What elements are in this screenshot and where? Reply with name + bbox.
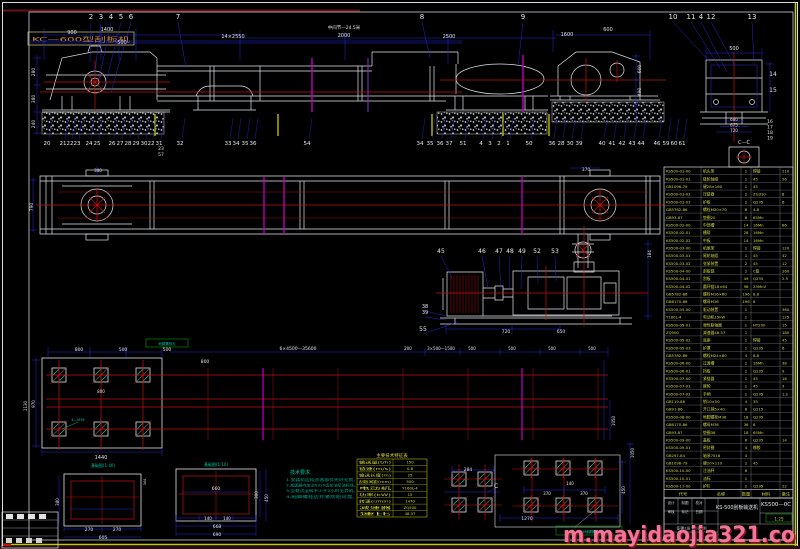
bom-cell: 护栏 xyxy=(703,484,711,489)
dim-label: 2500 xyxy=(443,34,456,40)
bom-cell: 16Mn xyxy=(753,238,764,243)
dim-label: 270 xyxy=(113,527,122,533)
bom-cell: 180 xyxy=(782,330,790,335)
callout-number: 27 xyxy=(117,141,124,147)
bom-cell: KS500-10-00 xyxy=(666,468,691,473)
param-value: 500 xyxy=(406,479,414,484)
dim-label: 地脚螺栓孔 xyxy=(158,341,176,346)
dim-label: 600 xyxy=(730,117,738,122)
bom-cell: 1 xyxy=(745,184,748,189)
callout-number: 55 xyxy=(419,326,427,333)
bom-cell: 45 xyxy=(753,176,758,181)
leader-line xyxy=(676,118,679,139)
cad-sheet: KC—600型刮板机 xyxy=(0,0,800,549)
bom-cell: 紧链器 xyxy=(703,376,715,381)
bom-cell: 65Mn xyxy=(753,430,764,435)
bom-cell: 螺母M16 xyxy=(703,299,719,304)
bom-header: 材料 xyxy=(762,491,771,498)
dim-label: 344 xyxy=(143,478,147,485)
callout-number: 32 xyxy=(177,141,184,147)
dim-label: 19 xyxy=(767,136,773,142)
bom-cell: 4 xyxy=(745,445,748,450)
bom-cell: 8.8 xyxy=(753,292,760,297)
dim-label: 370 xyxy=(582,167,591,173)
bom-cell: GB5782-86 xyxy=(666,353,688,358)
param-label: 速比 xyxy=(359,511,393,516)
technical-notes: 技术要求1.安装前应检查各部件完好无损。2.减速器内加注N320齿轮油至油标线。… xyxy=(286,469,358,499)
bom-cell: 螺栓M16×60 xyxy=(703,292,727,297)
param-label: 刮板间距(mm) xyxy=(359,479,392,484)
callout-number: 29 xyxy=(133,141,140,147)
callout-number: 43 xyxy=(629,141,636,147)
leader-line xyxy=(309,118,312,139)
bom-cell: 42 xyxy=(782,253,787,258)
dim-label: 1400 xyxy=(101,27,114,33)
bom-cell: 8 xyxy=(753,299,756,304)
dim-label: 800 xyxy=(97,389,105,394)
dim-label: 500 xyxy=(163,347,172,353)
callout-number: 35 xyxy=(242,141,249,147)
bom-cell: 65Mn xyxy=(753,215,764,220)
callout-number: 41 xyxy=(609,141,616,147)
param-label: 转速(r/min) xyxy=(359,498,392,503)
dim-label: 605 xyxy=(99,535,108,541)
bom-cell: 1 xyxy=(745,315,748,320)
callout-number: 35 xyxy=(427,141,434,147)
dim-label: 720 xyxy=(730,128,738,133)
dim-label: C—C xyxy=(738,140,750,146)
drawing-number: KS500—0C xyxy=(761,502,792,508)
bom-cell: 4.8 xyxy=(753,207,760,212)
drive-dim-lines xyxy=(446,240,652,334)
bom-cell: 6 xyxy=(745,437,748,442)
bom-header: 名称 xyxy=(717,491,725,498)
bom-cell: KS500-05-02 xyxy=(666,338,691,343)
bom-cell: KS500-03-00 xyxy=(666,245,691,250)
bom-cell: 螺母M36 xyxy=(703,422,719,427)
callout-number: 2 xyxy=(497,141,501,147)
bom-cell: Q235 xyxy=(753,484,764,489)
bom-cell: 8 xyxy=(782,192,785,197)
callout-number: 59 xyxy=(663,141,670,147)
bom-cell: 1 xyxy=(745,384,748,389)
bom-cell: KS500-03-01 xyxy=(666,253,691,258)
bom-cell: 18 xyxy=(744,430,749,435)
bom-cell: 196 xyxy=(742,292,750,297)
bom-cell: 电动机15kW xyxy=(703,315,725,320)
callout-number: 37 xyxy=(446,141,453,147)
bom-cell: 驱动装置 xyxy=(703,307,718,312)
bom-cell: 35 xyxy=(753,399,758,404)
bom-cell: 过渡槽 xyxy=(703,361,715,366)
dim-label: 17 xyxy=(767,125,773,131)
bom-cell: KS500-02-00 xyxy=(666,222,691,227)
bom-cell: 6 xyxy=(745,468,748,473)
bom-cell: 6 xyxy=(782,199,785,204)
bom-cell: 16Mn xyxy=(753,230,764,235)
leader-line xyxy=(178,22,186,68)
bom-cell: KS500-07-00 xyxy=(666,376,691,381)
bom-cell: 12 xyxy=(782,261,787,266)
bom-cell: 4 xyxy=(745,453,748,458)
bom-cell: KS500-01-03 xyxy=(666,199,691,204)
bom-cell: 14 xyxy=(744,222,749,227)
bom-cell: 棘轮 xyxy=(703,384,711,389)
dim-label: 500 xyxy=(117,40,127,46)
param-value: 150 xyxy=(406,460,414,465)
bom-cell: 中部槽 xyxy=(703,222,715,227)
bom-cell: 8 xyxy=(745,215,748,220)
callout-number: 28 xyxy=(125,141,132,147)
dim-label: 300 xyxy=(94,168,102,173)
dim-label: 380 xyxy=(31,95,37,104)
anchor-detail-6bolt xyxy=(495,442,634,535)
bom-cell: 盖板 xyxy=(703,437,711,442)
leader-line xyxy=(691,22,720,68)
bom-cell: 油标 xyxy=(703,476,711,481)
scale-value: 1:25 xyxy=(775,517,784,522)
bom-cell: 1 xyxy=(745,391,748,396)
dim-label: 16 xyxy=(767,119,773,125)
foundation-hatch-left xyxy=(42,112,164,134)
dim-label: 14 xyxy=(769,71,777,78)
bom-cell: 中板 xyxy=(703,238,711,243)
cad-drawing-canvas: KC—600型刮板机 xyxy=(0,0,800,549)
bom-cell: 焊接 xyxy=(753,245,761,250)
bom-cell: KS500-04-01 xyxy=(666,276,691,281)
dim-label: 800 xyxy=(201,359,210,365)
callout-number: 34 xyxy=(233,141,240,147)
bom-cell: 张紧装置 xyxy=(703,261,718,266)
bom-cell: 减速器48.57 xyxy=(703,330,726,335)
leader-line xyxy=(247,118,250,139)
callout-number: 60 xyxy=(671,141,678,147)
bom-table: KS500-01-00机头架1焊接210KS500-01-01链轮轴组14556… xyxy=(664,167,793,498)
callout-number: 26 xyxy=(109,141,116,147)
dim-label: 450 xyxy=(264,494,269,502)
dim-label: 240 xyxy=(31,120,37,129)
dim-label: 600 xyxy=(637,65,643,74)
bom-cell: 2 xyxy=(745,261,748,266)
callout-number: 6 xyxy=(129,13,134,21)
bom-cell: 38 xyxy=(782,361,787,366)
bom-cell: KS500-09-00 xyxy=(666,437,691,442)
bom-cell: 圆环链18×64 xyxy=(703,284,728,289)
bom-cell: 焊接 xyxy=(753,338,761,343)
bom-cell: KS500-01-02 xyxy=(666,192,691,197)
anchor-detail-4bolt xyxy=(444,464,502,520)
param-label: 输送量(t/h) xyxy=(359,460,392,465)
callout-number: 3 xyxy=(488,141,492,147)
bom-cell: GB5782-86 xyxy=(666,292,688,297)
dim-label: 1440 xyxy=(95,455,108,461)
notes-line: 2.减速器内加注N320齿轮油至油标线。 xyxy=(286,483,358,488)
bom-cell: 1 xyxy=(745,330,748,335)
foundation-grid-red xyxy=(46,360,608,450)
notes-line: 3.空载试运转不少于2小时无异响。 xyxy=(286,488,358,493)
dim-label: 14×2550 xyxy=(221,34,244,40)
bom-cell: ZQ500 xyxy=(666,330,679,335)
bom-cell: 1 xyxy=(745,338,748,343)
bom-cell: 2.5 xyxy=(782,276,789,281)
bom-cell: 45 xyxy=(753,253,758,258)
bom-cell: KS500-05-03 xyxy=(666,345,691,350)
dim-label: 140 xyxy=(566,481,574,486)
param-label: 电动机 xyxy=(359,485,392,490)
param-label: 链速(m/s) xyxy=(359,466,392,471)
title-cell: 标记 xyxy=(682,509,690,514)
product-name: KS-500刮板输送机 xyxy=(716,504,758,511)
bom-cell: 底座 xyxy=(703,338,711,343)
bom-cell: 机尾架 xyxy=(703,245,715,250)
bom-cell: 1 xyxy=(745,176,748,181)
bom-cell: GB93-87 xyxy=(666,215,683,220)
callout-number: 3 xyxy=(99,13,103,21)
bom-cell: 地脚螺栓M36 xyxy=(703,414,727,419)
callout-number: 12 xyxy=(707,13,716,21)
leader-line xyxy=(499,256,501,289)
bom-cell: 尾轮轴组 xyxy=(703,253,718,258)
dim-label: 1600 xyxy=(561,32,574,38)
dim-label: 140 xyxy=(223,516,231,521)
dim-label: 140 xyxy=(204,516,212,521)
bom-cell: KS500-07-02 xyxy=(666,391,691,396)
bom-cell: 密封圈 xyxy=(703,445,715,450)
callout-number: 11 xyxy=(687,13,696,21)
callout-number: 61 xyxy=(679,141,686,147)
callout-number: 5 xyxy=(119,13,123,21)
notes-line: 1.安装前应检查各部件完好无损。 xyxy=(286,477,358,482)
leader-line xyxy=(668,118,671,139)
watermark-text: m.mayidaojia321.co xyxy=(563,523,795,548)
bom-cell: GB119-86 xyxy=(666,399,686,404)
bom-cell: 手柄 xyxy=(703,391,711,396)
callout-number: 33 xyxy=(225,141,232,147)
bom-cell: 14 xyxy=(744,238,749,243)
bom-cell: KS500-02-02 xyxy=(666,238,691,243)
callout-number: 36 xyxy=(437,141,444,147)
leader-line xyxy=(518,22,523,66)
callout-number: 31 xyxy=(156,141,163,147)
param-value: ZQ500 xyxy=(404,505,417,510)
dim-label: C xyxy=(494,483,498,490)
bom-cell: 键28×160 xyxy=(703,184,723,189)
leader-line xyxy=(238,118,241,139)
dim-label: 2000 xyxy=(338,33,351,39)
dim-label: 200 xyxy=(404,346,412,351)
drive-centerlines xyxy=(436,226,648,326)
callout-number: 45 xyxy=(437,248,445,255)
bom-cell: 链轮轴组 xyxy=(703,176,718,181)
bom-cell: KS500-06-01 xyxy=(666,368,691,373)
dim-label: 668 xyxy=(213,524,222,530)
title-cell: 设计 xyxy=(668,500,676,505)
bom-cell: 260 xyxy=(782,269,790,274)
leader-line xyxy=(422,22,430,58)
param-label: 功率(kW) xyxy=(359,492,392,497)
bom-cell: 45 xyxy=(753,460,758,465)
bolt-leader xyxy=(62,422,78,429)
bom-cell: KS500-01-00 xyxy=(666,169,691,174)
bom-cell: GB91-86 xyxy=(666,407,683,412)
bom-cell: 9 xyxy=(782,368,785,373)
callout-number: 4 xyxy=(699,13,704,21)
callout-number: 54 xyxy=(304,141,311,147)
bom-cell: 销10×50 xyxy=(703,399,720,404)
bom-cell: Q235 xyxy=(753,345,764,350)
bom-cell: GB5782-86 xyxy=(666,207,688,212)
bom-cell: 45 xyxy=(782,338,787,343)
bom-cell: 22 xyxy=(782,484,787,489)
bom-cell: KS500-09-01 xyxy=(666,445,691,450)
foundation-hatch-drive xyxy=(437,112,547,134)
bom-cell: 螺栓M24×80 xyxy=(703,353,727,358)
bom-cell: KS500-02-01 xyxy=(666,230,691,235)
bom-cell: 3 xyxy=(782,384,785,389)
bom-cell: 49 xyxy=(744,276,749,281)
parameter-table: 输送量(t/h)150链速(m/s)0.8输送长度(m)25刮板间距(mm)50… xyxy=(357,459,427,517)
bom-cell: 45 xyxy=(753,261,758,266)
bom-cell: Q235 xyxy=(753,391,764,396)
bom-cell: 1 xyxy=(745,307,748,312)
bom-cell: 125 xyxy=(782,315,790,320)
leader-line xyxy=(701,22,727,72)
dim-label: 基础图(1:40) xyxy=(91,462,116,468)
bom-cell: Q235 xyxy=(753,437,764,442)
callout-number: 7 xyxy=(176,13,180,21)
leader-line xyxy=(537,256,538,283)
bom-cell: 弹性联轴器 xyxy=(703,322,722,327)
leader-line xyxy=(255,118,258,139)
bom-cell: 18 xyxy=(744,414,749,419)
param-value: 48.57 xyxy=(405,511,416,516)
bom-cell: 210 xyxy=(782,169,790,174)
dim-label: 380 xyxy=(55,498,60,506)
dim-label: 500 xyxy=(508,346,516,351)
bom-cell: C级 xyxy=(753,269,760,274)
callout-number: 42 xyxy=(619,141,626,147)
bom-cell: 2 xyxy=(745,361,748,366)
callout-number: 25 xyxy=(94,141,101,147)
callout-number: 34 xyxy=(417,141,424,147)
dim-label: 1130 xyxy=(23,400,28,411)
dim-label: 370 xyxy=(543,491,551,496)
callout-number: 44 xyxy=(638,141,645,147)
corner-stamp xyxy=(2,512,58,548)
callout-number: 22 xyxy=(148,141,155,147)
bom-cell: 28 xyxy=(744,230,749,235)
bom-cell: 45 xyxy=(753,384,758,389)
callout-number: 36 xyxy=(250,141,257,147)
detail-view-left xyxy=(59,474,141,537)
bom-cell: 开口销5×40 xyxy=(703,407,725,412)
bom-cell: KS500-05-00 xyxy=(666,307,691,312)
callout-number: 53 xyxy=(551,248,559,255)
bom-cell: 4 xyxy=(745,399,748,404)
leader-line xyxy=(230,118,233,139)
leader-line xyxy=(422,118,425,139)
bom-cell: GB1096-79 xyxy=(666,460,688,465)
callout-number: 52 xyxy=(533,248,541,255)
callout-number: 21 xyxy=(60,141,67,147)
callout-number: 22 xyxy=(67,141,74,147)
dim-label: 720 xyxy=(502,329,511,335)
bom-cell: 6 xyxy=(782,345,785,350)
bom-cell: KS500-01-01 xyxy=(666,176,691,181)
notes-title: 技术要求 xyxy=(290,469,310,476)
callout-number: 30 xyxy=(567,141,574,147)
leader-line xyxy=(182,118,185,139)
callout-number: 23 xyxy=(74,141,81,147)
bom-cell: 45 xyxy=(753,184,758,189)
bom-cell: Q235 xyxy=(753,414,764,419)
callout-number: 46 xyxy=(478,248,486,255)
dim-label: 300 xyxy=(254,491,259,499)
leader-line xyxy=(441,256,452,278)
dim-label: 600 xyxy=(603,27,613,33)
param-value: 1470 xyxy=(405,498,415,503)
dim-label: 15 xyxy=(769,87,777,94)
foundation-hatch-gearbox xyxy=(552,102,664,122)
bom-cell: 1 xyxy=(745,169,748,174)
callout-number: 24 xyxy=(86,141,93,147)
bom-cell: 注油杯 xyxy=(703,468,715,473)
dim-label: 800 xyxy=(75,347,84,353)
dim-label: 270 xyxy=(85,527,94,533)
bom-cell: 1 xyxy=(745,476,748,481)
bom-header: 备注 xyxy=(782,491,791,498)
bom-cell: KS500-06-00 xyxy=(666,361,691,366)
bom-cell: KS500-10-01 xyxy=(666,476,691,481)
param-label: 输送长度(m) xyxy=(359,473,392,478)
foundation-plan xyxy=(32,339,610,456)
plan-centerline xyxy=(36,188,664,222)
callout-number: 39 xyxy=(422,310,428,316)
callout-number: 48 xyxy=(506,248,514,255)
bom-cell: GB93-87 xyxy=(666,430,683,435)
param-value: 0.8 xyxy=(407,466,414,471)
bom-cell: KS500-04-02 xyxy=(666,284,691,289)
bom-cell: 8.8 xyxy=(753,353,760,358)
part-callouts: 2345678910114121345464748495253383955202… xyxy=(44,13,757,333)
bom-cell: 86 xyxy=(782,222,787,227)
dim-label: 790 xyxy=(29,203,35,212)
watermark-layer: m.mayidaojia321.co m.mayidaojia321.co xyxy=(563,523,797,549)
bom-cell: 轴承7518 xyxy=(703,453,721,458)
callout-number: 10 xyxy=(669,13,678,21)
bom-cell: 14 xyxy=(782,437,787,442)
callout-number: 49 xyxy=(518,248,526,255)
bom-cell: GB297-84 xyxy=(666,453,686,458)
bom-cell: 16Mn xyxy=(753,222,764,227)
bom-cell: 键20×110 xyxy=(703,460,723,465)
bom-cell: 螺栓M20×70 xyxy=(703,207,727,212)
foundation-dim-lines xyxy=(32,347,610,456)
dim-label: 500 xyxy=(119,347,128,353)
dim-label: 500 xyxy=(468,346,476,351)
bom-cell: 196 xyxy=(742,299,750,304)
title-cell: 审核 xyxy=(668,509,676,514)
bom-cell: 16Mn xyxy=(753,361,764,366)
callout-number: 13 xyxy=(748,13,757,21)
dim-label: 57 xyxy=(158,152,164,158)
bom-cell: 2 xyxy=(745,199,748,204)
leader-line xyxy=(673,22,710,62)
bom-cell: KS500-04-00 xyxy=(666,269,691,274)
callout-number: 51 xyxy=(460,141,467,147)
leader-line xyxy=(752,22,754,62)
bom-cell: 1 xyxy=(745,376,748,381)
